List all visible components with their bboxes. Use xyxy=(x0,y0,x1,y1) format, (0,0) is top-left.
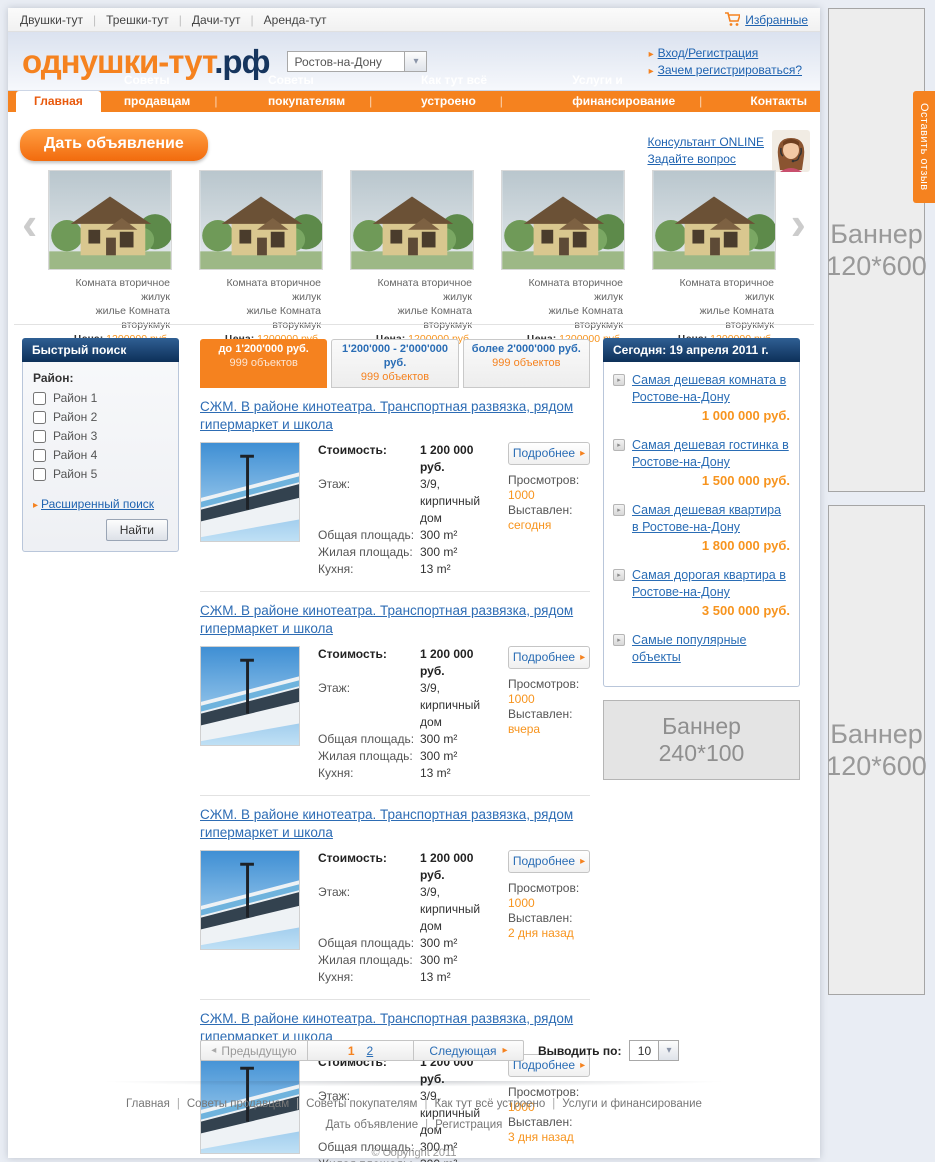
banner-text: 120*600 xyxy=(826,750,927,782)
per-page-value[interactable]: 10 xyxy=(629,1040,659,1061)
featured-carousel: ‹ › Комната вторичное жилукжилье Комната… xyxy=(8,170,820,320)
listing-title-link[interactable]: СЖМ. В районе кинотеатра. Транспортная р… xyxy=(200,399,573,432)
banner-120x600-bottom[interactable]: Баннер 120*600 xyxy=(828,505,925,995)
carousel-item[interactable]: Комната вторичное жилукжилье Комната вто… xyxy=(48,170,172,346)
square-arrow-icon[interactable]: ▸ xyxy=(613,569,625,581)
listing-meta: Просмотров:1000 Выставлен:сегодня xyxy=(508,473,590,533)
district-4-label: Район 4 xyxy=(53,448,97,462)
footer-link-how-it-works[interactable]: Как тут всё устроено xyxy=(434,1098,562,1110)
top-bar: Двушки-тут Трешки-тут Дачи-тут Аренда-ту… xyxy=(8,8,820,32)
most-expensive-apartment-link[interactable]: Самая дорогая квартира в Ростове-на-Дону xyxy=(632,568,786,599)
sister-site-links: Двушки-тут Трешки-тут Дачи-тут Аренда-ту… xyxy=(20,13,326,27)
district-checkbox-row[interactable]: Район 5 xyxy=(33,467,168,481)
square-arrow-icon[interactable]: ▸ xyxy=(613,374,625,386)
footer-link-register[interactable]: Регистрация xyxy=(435,1119,502,1131)
banner-120x600-top[interactable]: Баннер 120*600 xyxy=(828,8,925,492)
tab-contacts[interactable]: Контакты xyxy=(737,91,820,112)
footer-links-row1: ГлавнаяСоветы продавцамСоветы покупателя… xyxy=(8,1098,820,1110)
footer-link-post-ad[interactable]: Дать объявление xyxy=(326,1119,436,1131)
district-checkbox-row[interactable]: Район 1 xyxy=(33,391,168,405)
today-item-price: 3 500 000 руб. xyxy=(632,603,790,618)
search-submit-button[interactable]: Найти xyxy=(106,519,168,541)
prev-page-button[interactable]: ◂Предыдущую xyxy=(200,1040,308,1061)
listing-photo[interactable] xyxy=(200,646,300,746)
carousel-item[interactable]: Комната вторичное жилукжилье Комната вто… xyxy=(501,170,625,346)
tab-main[interactable]: Главная xyxy=(16,91,101,112)
per-page-dropdown-button[interactable]: ▾ xyxy=(659,1040,679,1061)
district-2-checkbox[interactable] xyxy=(33,411,46,424)
favorites[interactable]: Избранные xyxy=(724,12,808,27)
house-photo xyxy=(501,170,625,270)
today-item: ▸ Самая дешевая комната в Ростове-на-Дон… xyxy=(613,372,790,423)
quick-search-title: Быстрый поиск xyxy=(22,338,179,362)
copyright: © Copyright 2011 xyxy=(8,1147,820,1159)
banner-text: Баннер xyxy=(662,713,741,740)
listing-details: Стоимость:1 200 000 руб. Этаж:3/9, кирпи… xyxy=(318,850,500,986)
current-page: 1 xyxy=(348,1044,355,1058)
listing-meta: Просмотров:1000 Выставлен:вчера xyxy=(508,677,590,737)
main-container: Двушки-тут Трешки-тут Дачи-тут Аренда-ту… xyxy=(8,8,820,1158)
page-numbers: 1 2 xyxy=(308,1040,414,1061)
listing-separator xyxy=(200,795,590,796)
listing-card: СЖМ. В районе кинотеатра. Транспортная р… xyxy=(200,602,590,796)
tab-seller-tips[interactable]: Советы продавцам xyxy=(111,70,255,112)
district-2-label: Район 2 xyxy=(53,410,97,424)
cart-icon xyxy=(724,12,740,27)
price-tab-mid[interactable]: 1'200'000 - 2'000'000 руб.999 объектов xyxy=(331,339,458,388)
arrow-right-icon: ▸ xyxy=(580,448,585,459)
right-column: Сегодня: 19 апреля 2011 г. ▸ Самая дешев… xyxy=(603,338,800,780)
district-checkbox-row[interactable]: Район 4 xyxy=(33,448,168,462)
listings-column: до 1'200'000 руб.999 объектов 1'200'000 … xyxy=(200,339,590,1162)
arrow-left-icon: ◂ xyxy=(211,1045,216,1056)
chevron-down-icon: ▾ xyxy=(413,56,418,67)
details-button[interactable]: Подробнее▸ xyxy=(508,850,590,873)
footer-link-main[interactable]: Главная xyxy=(126,1098,187,1110)
today-item: ▸ Самая дешевая квартира в Ростове-на-До… xyxy=(613,502,790,553)
house-photo xyxy=(48,170,172,270)
footer-link-seller-tips[interactable]: Советы продавцам xyxy=(187,1098,306,1110)
listing-separator xyxy=(200,999,590,1000)
carousel-prev-button[interactable]: ‹ xyxy=(22,200,37,246)
banner-240x100[interactable]: Баннер 240*100 xyxy=(603,700,800,780)
house-photo xyxy=(350,170,474,270)
district-5-label: Район 5 xyxy=(53,467,97,481)
district-checkbox-row[interactable]: Район 3 xyxy=(33,429,168,443)
house-photo xyxy=(652,170,776,270)
arrow-bullet-icon: ▸ xyxy=(33,500,38,511)
listing-card: СЖМ. В районе кинотеатра. Транспортная р… xyxy=(200,806,590,1000)
today-item: ▸ Самая дешевая гостинка в Ростове-на-До… xyxy=(613,437,790,488)
arrow-bullet-icon: ▸ xyxy=(649,49,654,60)
listing-meta: Просмотров:1000 Выставлен:2 дня назад xyxy=(508,881,590,941)
listing-separator xyxy=(200,591,590,592)
banner-text: 120*600 xyxy=(826,250,927,282)
per-page-select[interactable]: 10 ▾ xyxy=(629,1040,679,1061)
price-tab-low[interactable]: до 1'200'000 руб.999 объектов xyxy=(200,339,327,388)
footer-shadow xyxy=(8,1081,820,1089)
price-tab-high[interactable]: более 2'000'000 руб.999 объектов xyxy=(463,339,590,388)
carousel-item[interactable]: Комната вторичное жилукжилье Комната вто… xyxy=(350,170,474,346)
banner-text: Баннер xyxy=(830,718,923,750)
banner-text: Баннер xyxy=(830,218,923,250)
price-filter-tabs: до 1'200'000 руб.999 объектов 1'200'000 … xyxy=(200,339,590,388)
chevron-down-icon: ▾ xyxy=(666,1045,671,1056)
carousel-caption: Комната вторичное жилукжилье Комната вто… xyxy=(501,276,625,346)
district-5-checkbox[interactable] xyxy=(33,468,46,481)
city-dropdown-button[interactable]: ▾ xyxy=(405,51,427,72)
carousel-next-button[interactable]: › xyxy=(791,200,806,246)
link-dachi[interactable]: Дачи-тут xyxy=(192,13,264,27)
listing-title-link[interactable]: СЖМ. В районе кинотеатра. Транспортная р… xyxy=(200,603,573,636)
ask-question-link[interactable]: Задайте вопрос xyxy=(647,151,764,168)
listing-photo[interactable] xyxy=(200,442,300,542)
district-label: Район: xyxy=(33,371,168,385)
consultant-avatar xyxy=(772,130,810,172)
link-treshki[interactable]: Трешки-тут xyxy=(106,13,192,27)
arrow-right-icon: ▸ xyxy=(580,652,585,663)
post-ad-button[interactable]: Дать объявление xyxy=(20,129,208,161)
district-4-checkbox[interactable] xyxy=(33,449,46,462)
next-page-button[interactable]: Следующая▸ xyxy=(414,1040,524,1061)
carousel-caption: Комната вторичное жилукжилье Комната вто… xyxy=(652,276,776,346)
content: Дать объявление Консультант ONLINE Задай… xyxy=(8,112,820,1081)
details-button[interactable]: Подробнее▸ xyxy=(508,646,590,669)
cheapest-apartment-link[interactable]: Самая дешевая квартира в Ростове-на-Дону xyxy=(632,503,781,534)
listing-card: СЖМ. В районе кинотеатра. Транспортная р… xyxy=(200,398,590,592)
today-item: ▸ Самые популярные объекты xyxy=(613,632,790,666)
carousel-caption: Комната вторичное жилукжилье Комната вто… xyxy=(48,276,172,346)
today-block-title: Сегодня: 19 апреля 2011 г. xyxy=(603,338,800,362)
footer: ГлавнаяСоветы продавцамСоветы покупателя… xyxy=(8,1081,820,1158)
carousel-item[interactable]: Комната вторичное жилукжилье Комната вто… xyxy=(652,170,776,346)
page-2-link[interactable]: 2 xyxy=(367,1044,374,1058)
tab-how-it-works[interactable]: Как тут всё устроено xyxy=(408,70,559,112)
link-dvushki[interactable]: Двушки-тут xyxy=(20,13,106,27)
arrow-right-icon: ▸ xyxy=(580,856,585,867)
tab-services[interactable]: Услуги и финансирование xyxy=(559,70,737,112)
listing-photo[interactable] xyxy=(200,850,300,950)
page: Двушки-тут Трешки-тут Дачи-тут Аренда-ту… xyxy=(0,0,935,1162)
advanced-search-link[interactable]: Расширенный поиск xyxy=(41,497,154,511)
popular-objects-link[interactable]: Самые популярные объекты xyxy=(632,633,746,664)
today-item-price: 1 500 000 руб. xyxy=(632,473,790,488)
details-button[interactable]: Подробнее▸ xyxy=(508,442,590,465)
square-arrow-icon[interactable]: ▸ xyxy=(613,439,625,451)
login-link[interactable]: Вход/Регистрация xyxy=(658,46,759,60)
footer-links-row2: Дать объявлениеРегистрация xyxy=(8,1119,820,1131)
carousel-caption: Комната вторичное жилукжилье Комната вто… xyxy=(350,276,474,346)
today-item-price: 1 800 000 руб. xyxy=(632,538,790,553)
per-page-label: Выводить по: xyxy=(538,1044,621,1058)
tab-buyer-tips[interactable]: Советы покупателям xyxy=(255,70,408,112)
listing-details: Стоимость:1 200 000 руб. Этаж:3/9, кирпи… xyxy=(318,646,500,782)
house-photo xyxy=(199,170,323,270)
city-select-value[interactable]: Ростов-на-Дону xyxy=(287,51,405,72)
square-arrow-icon[interactable]: ▸ xyxy=(613,504,625,516)
today-item-price: 1 000 000 руб. xyxy=(632,408,790,423)
main-nav: Главная Советы продавцам Советы покупате… xyxy=(8,91,820,112)
listing-details: Стоимость:1 200 000 руб. Этаж:3/9, кирпи… xyxy=(318,442,500,578)
district-3-checkbox[interactable] xyxy=(33,430,46,443)
quick-search-panel: Быстрый поиск Район: Район 1 Район 2 Рай… xyxy=(22,338,179,552)
footer-link-buyer-tips[interactable]: Советы покупателям xyxy=(306,1098,434,1110)
district-1-checkbox[interactable] xyxy=(33,392,46,405)
leave-feedback-tab[interactable]: Оставить отзыв xyxy=(913,91,935,203)
arrow-right-icon: ▸ xyxy=(580,1060,585,1071)
today-block: ▸ Самая дешевая комната в Ростове-на-Дон… xyxy=(603,362,800,687)
carousel-caption: Комната вторичное жилукжилье Комната вто… xyxy=(199,276,323,346)
favorites-link[interactable]: Избранные xyxy=(745,13,808,27)
consultant-online: Консультант ONLINE Задайте вопрос xyxy=(647,130,810,172)
section-divider xyxy=(14,324,814,325)
footer-link-services[interactable]: Услуги и финансирование xyxy=(562,1098,702,1110)
listing-title-link[interactable]: СЖМ. В районе кинотеатра. Транспортная р… xyxy=(200,807,573,840)
district-1-label: Район 1 xyxy=(53,391,97,405)
district-checkbox-row[interactable]: Район 2 xyxy=(33,410,168,424)
today-item: ▸ Самая дорогая квартира в Ростове-на-До… xyxy=(613,567,790,618)
cheapest-gostinka-link[interactable]: Самая дешевая гостинка в Ростове-на-Дону xyxy=(632,438,789,469)
square-arrow-icon[interactable]: ▸ xyxy=(613,634,625,646)
consultant-online-link[interactable]: Консультант ONLINE xyxy=(647,134,764,151)
banner-text: 240*100 xyxy=(659,740,745,767)
district-3-label: Район 3 xyxy=(53,429,97,443)
cheapest-room-link[interactable]: Самая дешевая комната в Ростове-на-Дону xyxy=(632,373,786,404)
link-arenda[interactable]: Аренда-тут xyxy=(264,13,327,27)
arrow-right-icon: ▸ xyxy=(503,1045,508,1056)
carousel-item[interactable]: Комната вторичное жилукжилье Комната вто… xyxy=(199,170,323,346)
pagination: ◂Предыдущую 1 2 Следующая▸ Выводить по: … xyxy=(200,1040,679,1061)
city-select[interactable]: Ростов-на-Дону ▾ xyxy=(287,51,427,72)
